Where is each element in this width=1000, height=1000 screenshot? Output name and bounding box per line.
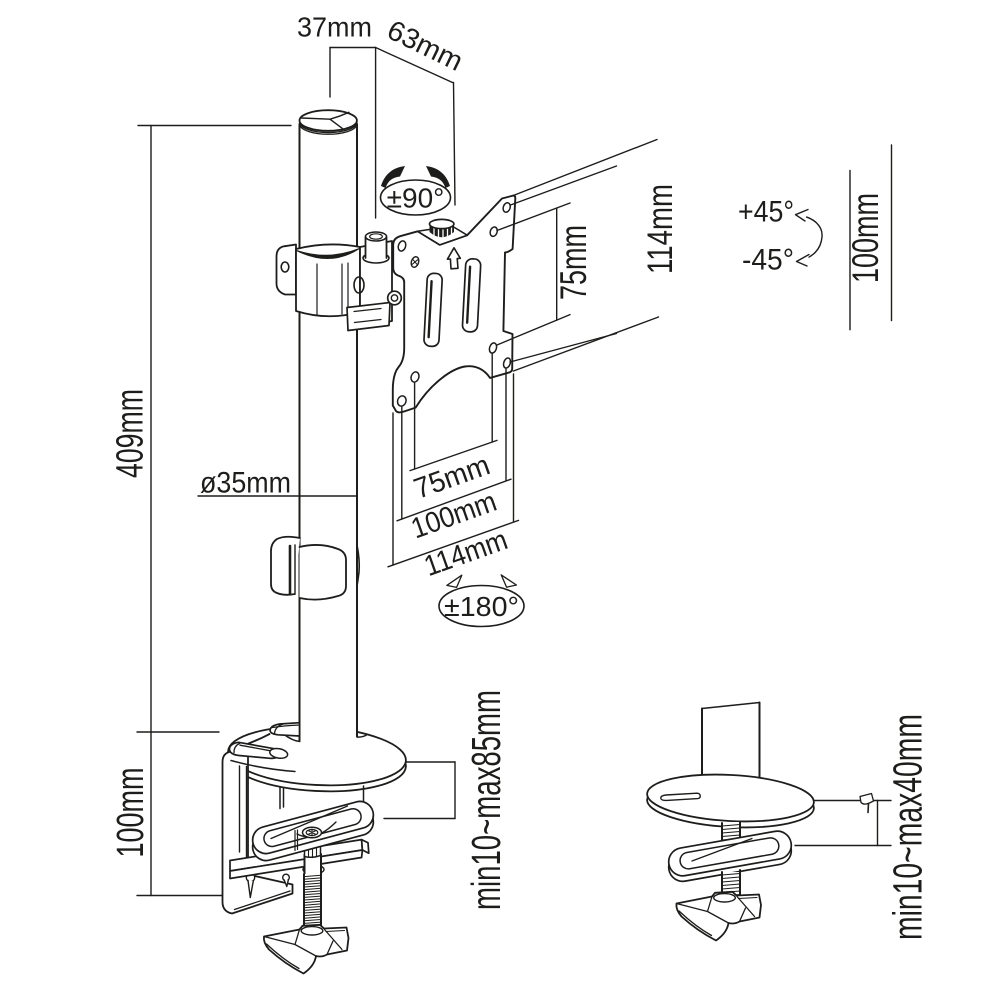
svg-text:min10~max40mm: min10~max40mm [885,714,931,940]
svg-text:114mm: 114mm [641,184,680,274]
svg-text:100mm: 100mm [110,768,152,858]
svg-text:-45°: -45° [742,244,794,277]
svg-text:+45°: +45° [738,196,794,229]
svg-text:37mm: 37mm [297,12,372,43]
svg-text:±90°: ±90° [387,183,445,214]
svg-text:min10~max85mm: min10~max85mm [463,690,509,910]
svg-text:±180°: ±180° [444,591,519,622]
svg-text:ø35mm: ø35mm [200,467,291,500]
svg-text:409mm: 409mm [110,389,152,478]
svg-text:100mm: 100mm [845,193,886,283]
svg-text:75mm: 75mm [553,225,594,300]
